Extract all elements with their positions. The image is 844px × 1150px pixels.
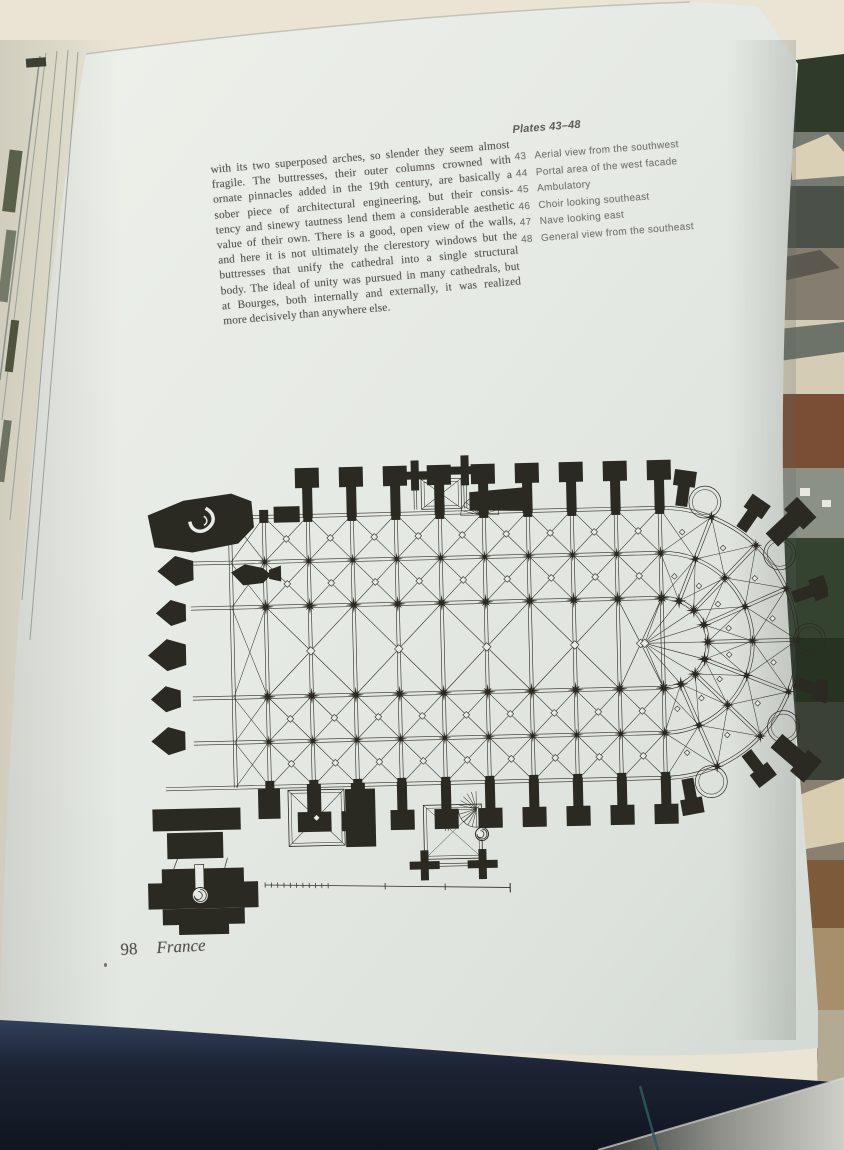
plate-number: 44 [515, 167, 536, 185]
plate-number: 47 [519, 217, 540, 235]
section-title: France [156, 936, 206, 958]
plate-number: 45 [517, 183, 538, 201]
plate-number: 43 [514, 150, 535, 168]
cathedral-floor-plan-drawing [138, 452, 828, 976]
paper-speck [104, 963, 107, 967]
plate-number: 46 [518, 200, 539, 218]
plates-list: Plates 43–48 43 Aerial view from the sou… [512, 106, 751, 251]
page-number: 98 [120, 939, 138, 959]
body-text-paragraph: with its two superposed arches, so slend… [210, 138, 523, 330]
book-photo-scene: with its two superposed arches, so slend… [0, 0, 844, 1150]
plates-items: 43 Aerial view from the southwest 44 Por… [514, 134, 751, 251]
plate-number: 48 [521, 233, 542, 251]
cathedral-floor-plan [138, 452, 828, 976]
